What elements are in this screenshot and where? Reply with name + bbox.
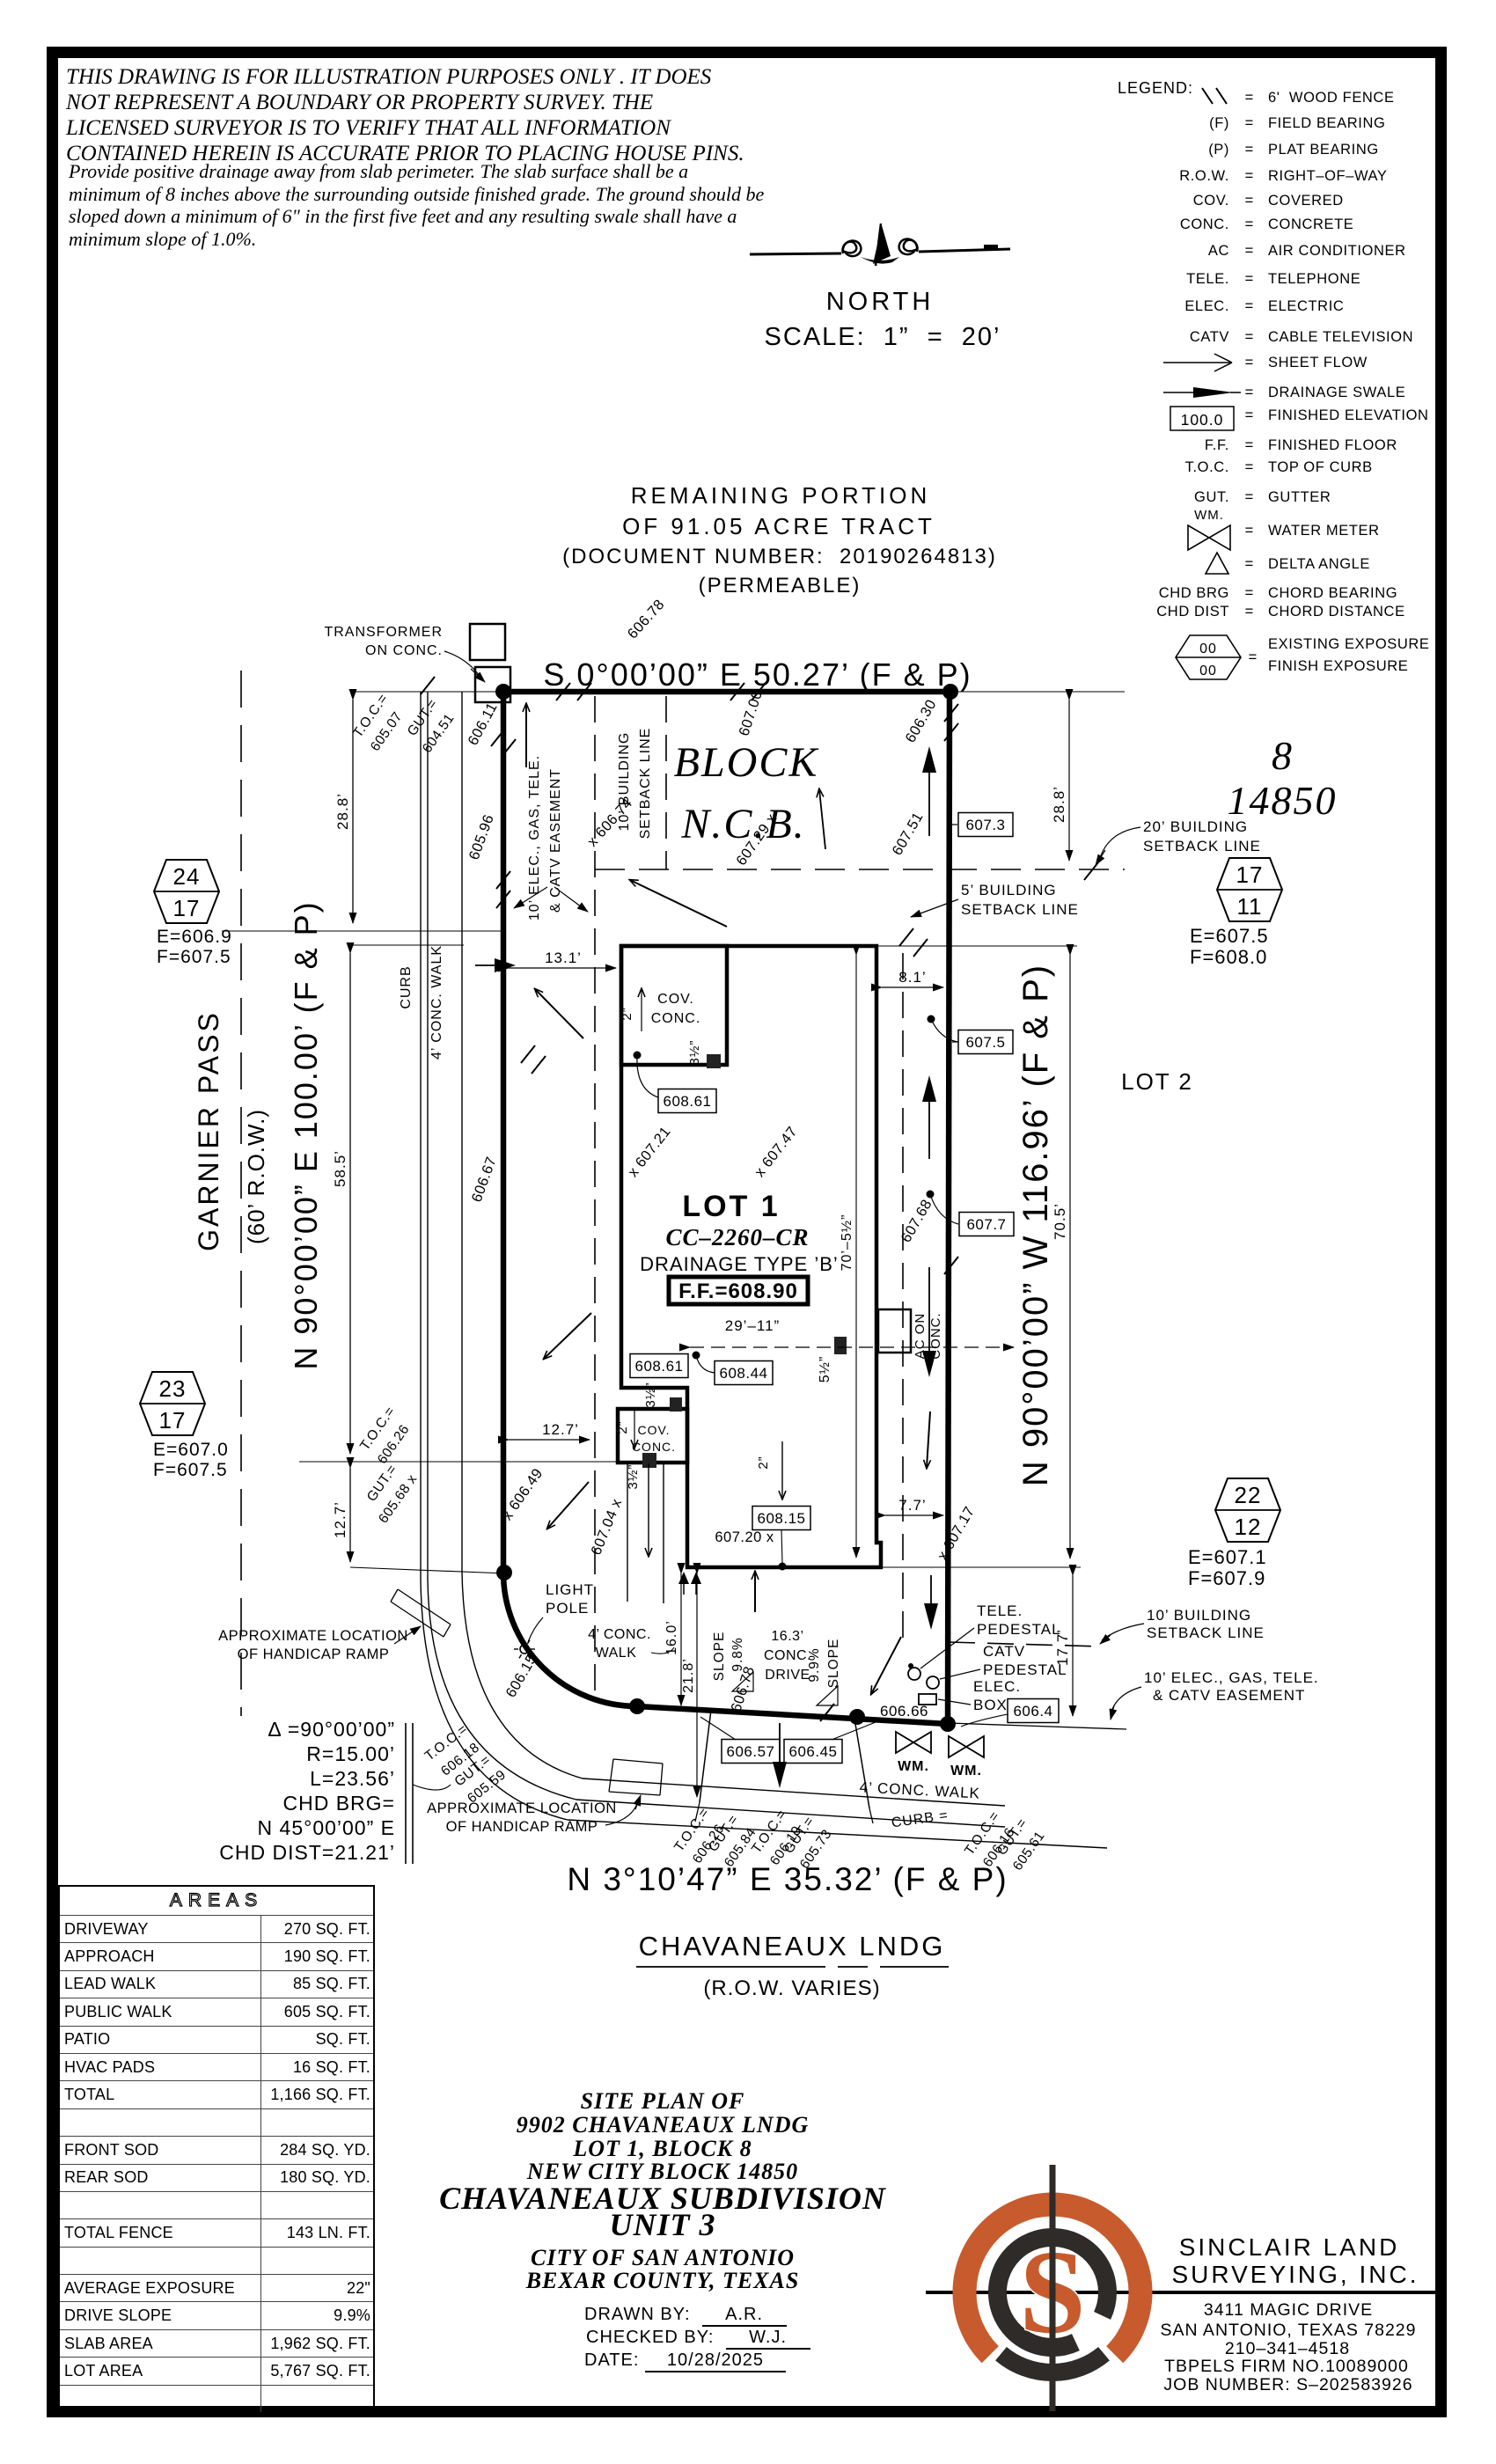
svg-text:CONC.: CONC.	[1180, 216, 1229, 232]
svg-text:CURB =: CURB =	[891, 1808, 950, 1831]
svg-text:N.C.B.: N.C.B.	[680, 801, 805, 847]
svg-text:=: =	[1249, 649, 1258, 665]
svg-text:SLOPE: SLOPE	[712, 1632, 727, 1682]
svg-text:F=607.5: F=607.5	[157, 947, 231, 967]
svg-text:CABLE TELEVISION: CABLE TELEVISION	[1268, 329, 1413, 345]
svg-text:(P): (P)	[1208, 142, 1229, 158]
svg-text:ELECTRIC: ELECTRIC	[1268, 298, 1344, 314]
svg-text:SCALE: 1” = 20’: SCALE: 1” = 20’	[765, 323, 1001, 351]
svg-text:606.30: 606.30	[903, 697, 940, 745]
svg-text:LIGHT: LIGHT	[546, 1581, 594, 1598]
svg-text:4’ CONC.: 4’ CONC.	[588, 1627, 651, 1642]
svg-text:10’ ELEC., GAS, TELE.: 10’ ELEC., GAS, TELE.	[1144, 1669, 1319, 1686]
svg-text:DELTA ANGLE: DELTA ANGLE	[1268, 556, 1370, 572]
svg-text:E=607.1: E=607.1	[1188, 1546, 1267, 1568]
svg-text:17: 17	[159, 1407, 187, 1434]
svg-text:x 607.47: x 607.47	[752, 1124, 801, 1180]
svg-text:(PERMEABLE): (PERMEABLE)	[699, 574, 862, 598]
svg-text:=: =	[1245, 193, 1255, 209]
svg-text:REMAINING PORTION: REMAINING PORTION	[631, 482, 931, 509]
svg-text:606.57: 606.57	[727, 1743, 775, 1760]
svg-text:5½”: 5½”	[818, 1356, 832, 1383]
svg-text:70’–5½”: 70’–5½”	[840, 1214, 854, 1272]
svg-text:CHD DIST=21.21’: CHD DIST=21.21’	[219, 1841, 395, 1864]
svg-text:607.20 x: 607.20 x	[715, 1529, 774, 1545]
svg-text:BLOCK: BLOCK	[674, 739, 820, 786]
svg-text:TOP OF CURB: TOP OF CURB	[1268, 459, 1373, 475]
svg-text:607.04 x: 607.04 x	[588, 1496, 625, 1557]
svg-text:=: =	[1245, 407, 1255, 423]
svg-text:LOT 1: LOT 1	[682, 1190, 780, 1223]
svg-text:(R.O.W. VARIES): (R.O.W. VARIES)	[703, 1976, 880, 2000]
svg-text:28.8’: 28.8’	[1051, 786, 1067, 823]
svg-text:7.7’: 7.7’	[898, 1497, 926, 1514]
svg-text:=: =	[1245, 271, 1255, 287]
svg-text:12.7’: 12.7’	[332, 1501, 348, 1538]
svg-text:CC–2260–CR: CC–2260–CR	[665, 1224, 809, 1250]
svg-text:606.67: 606.67	[469, 1155, 500, 1204]
svg-text:2”: 2”	[620, 1007, 634, 1020]
svg-text:PLAT BEARING: PLAT BEARING	[1268, 142, 1379, 158]
svg-text:607.5: 607.5	[965, 1034, 1005, 1051]
svg-text:CATV: CATV	[983, 1643, 1025, 1660]
svg-text:=: =	[1245, 604, 1255, 620]
svg-text:FINISH EXPOSURE: FINISH EXPOSURE	[1268, 658, 1408, 674]
svg-text:WALK: WALK	[596, 1646, 637, 1661]
svg-text:=: =	[1245, 355, 1255, 370]
svg-text:F=607.5: F=607.5	[153, 1460, 228, 1480]
svg-text:9.8%: 9.8%	[730, 1637, 745, 1671]
svg-text:607.68: 607.68	[898, 1197, 935, 1245]
svg-text:E=606.9: E=606.9	[157, 927, 232, 947]
svg-text:SETBACK LINE: SETBACK LINE	[638, 728, 653, 840]
svg-text:=: =	[1245, 298, 1255, 314]
svg-text:=: =	[1245, 115, 1255, 131]
svg-text:N 45°00’00” E: N 45°00’00” E	[258, 1816, 395, 1839]
svg-text:CHORD DISTANCE: CHORD DISTANCE	[1268, 604, 1405, 620]
svg-text:LOT 2: LOT 2	[1121, 1068, 1193, 1095]
svg-text:=: =	[1245, 385, 1255, 400]
svg-text:210–341–4518: 210–341–4518	[1225, 2339, 1350, 2358]
svg-text:OF 91.05 ACRE TRACT: OF 91.05 ACRE TRACT	[622, 513, 935, 539]
svg-text:JOB NUMBER: S–202583926: JOB NUMBER: S–202583926	[1163, 2375, 1412, 2394]
svg-text:14850: 14850	[1228, 778, 1338, 823]
svg-text:=: =	[1245, 556, 1255, 572]
svg-text:=: =	[1245, 523, 1255, 539]
svg-text:WM.: WM.	[950, 1764, 982, 1778]
svg-text:(F): (F)	[1209, 115, 1229, 131]
svg-text:CATV: CATV	[1190, 329, 1229, 345]
svg-text:607.3: 607.3	[965, 817, 1005, 833]
svg-text:=: =	[1245, 437, 1255, 453]
svg-text:F=607.9: F=607.9	[1188, 1567, 1265, 1589]
svg-text:COV.: COV.	[638, 1423, 671, 1437]
svg-text:TRANSFORMER: TRANSFORMER	[324, 625, 443, 640]
svg-text:607.00: 607.00	[736, 688, 766, 737]
svg-text:606.45: 606.45	[789, 1743, 838, 1760]
svg-text:AIR CONDITIONER: AIR CONDITIONER	[1268, 243, 1406, 259]
svg-text:N 90°00’00” E 100.00’ (F & P): N 90°00’00” E 100.00’ (F & P)	[288, 900, 324, 1369]
svg-text:607.7: 607.7	[966, 1216, 1006, 1233]
svg-text:L=23.56’: L=23.56’	[310, 1767, 395, 1790]
svg-text:11: 11	[1237, 893, 1263, 920]
svg-text:=: =	[1245, 168, 1255, 184]
svg-text:CONC.: CONC.	[764, 1648, 811, 1663]
svg-text:GUT.: GUT.	[1194, 489, 1229, 505]
svg-text:CHD BRG=: CHD BRG=	[283, 1792, 396, 1815]
svg-text:BOX: BOX	[973, 1697, 1008, 1713]
svg-text:PEDESTAL: PEDESTAL	[983, 1661, 1067, 1678]
svg-text:17: 17	[1236, 862, 1264, 888]
svg-text:RIGHT–OF–WAY: RIGHT–OF–WAY	[1268, 168, 1388, 184]
svg-text:CONC.: CONC.	[632, 1440, 676, 1454]
svg-text:3½”: 3½”	[643, 1382, 658, 1408]
svg-text:COVERED: COVERED	[1268, 193, 1344, 209]
svg-text:=: =	[1245, 142, 1255, 158]
svg-text:608.61: 608.61	[664, 1093, 712, 1110]
svg-text:9.9%: 9.9%	[807, 1647, 822, 1682]
svg-text:SETBACK LINE: SETBACK LINE	[961, 901, 1079, 918]
svg-text:N 90°00’00” W 116.96’ (F & P): N 90°00’00” W 116.96’ (F & P)	[1016, 964, 1055, 1486]
svg-text:=: =	[1245, 243, 1255, 259]
svg-text:GARNIER PASS: GARNIER PASS	[193, 1010, 224, 1251]
svg-text:COV.: COV.	[1193, 193, 1229, 209]
svg-text:607.51: 607.51	[890, 810, 927, 858]
svg-text:=: =	[1245, 90, 1255, 106]
svg-text:FIELD BEARING: FIELD BEARING	[1268, 115, 1385, 131]
svg-text:=: =	[1245, 459, 1255, 475]
svg-text:COV.: COV.	[657, 992, 694, 1007]
svg-text:10’ BUILDING: 10’ BUILDING	[1147, 1607, 1251, 1624]
svg-text:NORTH: NORTH	[826, 288, 935, 316]
svg-text:FINISHED ELEVATION: FINISHED ELEVATION	[1268, 407, 1429, 423]
svg-text:SLOPE: SLOPE	[826, 1639, 841, 1689]
svg-text:x 607.21: x 607.21	[625, 1124, 674, 1180]
svg-text:DRAINAGE SWALE: DRAINAGE SWALE	[1268, 385, 1405, 400]
svg-text:20’ BUILDING: 20’ BUILDING	[1143, 818, 1248, 835]
svg-text:F.F.=608.90: F.F.=608.90	[678, 1280, 798, 1303]
svg-text:606.78: 606.78	[625, 597, 668, 642]
svg-text:5’ BUILDING: 5’ BUILDING	[961, 882, 1057, 898]
svg-text:608.44: 608.44	[720, 1365, 768, 1382]
svg-text:OF HANDICAP RAMP: OF HANDICAP RAMP	[238, 1646, 390, 1662]
svg-text:Δ =90°00’00”: Δ =90°00’00”	[268, 1718, 395, 1741]
svg-text:CHORD BEARING: CHORD BEARING	[1268, 585, 1397, 601]
svg-text:SETBACK LINE: SETBACK LINE	[1143, 838, 1261, 854]
svg-text:17: 17	[173, 895, 201, 921]
svg-text:& CATV EASEMENT: & CATV EASEMENT	[548, 768, 563, 913]
svg-text:2”: 2”	[756, 1456, 771, 1469]
svg-text:PEDESTAL: PEDESTAL	[977, 1621, 1061, 1638]
svg-text:WATER METER: WATER METER	[1268, 523, 1380, 539]
svg-text:=: =	[1245, 489, 1255, 505]
svg-text:3411 MAGIC DRIVE: 3411 MAGIC DRIVE	[1204, 2300, 1373, 2320]
svg-text:F.F.: F.F.	[1205, 437, 1229, 453]
svg-text:TELEPHONE: TELEPHONE	[1268, 271, 1360, 287]
svg-text:APPROXIMATE LOCATION: APPROXIMATE LOCATION	[218, 1628, 408, 1644]
svg-text:00: 00	[1199, 664, 1217, 678]
svg-text:100.0: 100.0	[1181, 411, 1224, 429]
svg-text:605.96: 605.96	[466, 812, 497, 862]
svg-text:CONC.: CONC.	[651, 1011, 701, 1026]
svg-text:LEGEND:: LEGEND:	[1118, 79, 1193, 97]
svg-text:=: =	[1245, 329, 1255, 345]
svg-text:APPROXIMATE LOCATION: APPROXIMATE LOCATION	[427, 1800, 617, 1816]
svg-text:00: 00	[1199, 642, 1217, 656]
svg-text:POLE: POLE	[546, 1600, 589, 1617]
svg-text:TELE.: TELE.	[977, 1602, 1023, 1619]
svg-text:21.8’: 21.8’	[681, 1658, 696, 1693]
svg-text:DRIVE: DRIVE	[765, 1668, 810, 1683]
svg-text:FINISHED FLOOR: FINISHED FLOOR	[1268, 437, 1397, 453]
svg-text:AC: AC	[1208, 243, 1229, 259]
svg-text:CURB: CURB	[399, 965, 414, 1008]
svg-text:24: 24	[173, 863, 201, 890]
svg-text:CHD DIST: CHD DIST	[1156, 604, 1229, 620]
svg-text:F=608.0: F=608.0	[1190, 946, 1267, 968]
svg-text:8: 8	[1272, 733, 1293, 778]
svg-text:R=15.00’: R=15.00’	[306, 1742, 395, 1765]
svg-text:SINCLAIR LAND: SINCLAIR LAND	[1179, 2233, 1400, 2261]
svg-text:GUTTER: GUTTER	[1268, 489, 1331, 505]
svg-text:N 3°10’47” E 35.32’ (F & P): N 3°10’47” E 35.32’ (F & P)	[567, 1861, 1008, 1897]
svg-text:T.O.C.: T.O.C.	[1185, 459, 1229, 475]
svg-text:WM.: WM.	[898, 1759, 929, 1774]
svg-text:16.3’: 16.3’	[771, 1629, 803, 1644]
svg-text:12: 12	[1235, 1514, 1262, 1540]
svg-text:606.4: 606.4	[1013, 1703, 1052, 1720]
svg-text:ON CONC.: ON CONC.	[365, 643, 443, 658]
svg-text:70.5’: 70.5’	[1052, 1203, 1068, 1240]
svg-text:E=607.5: E=607.5	[1190, 925, 1269, 947]
svg-text:R.O.W.: R.O.W.	[1179, 168, 1229, 184]
svg-text:SHEET FLOW: SHEET FLOW	[1268, 355, 1368, 370]
svg-text:SETBACK LINE: SETBACK LINE	[1147, 1624, 1265, 1641]
svg-text:2”: 2”	[615, 1420, 630, 1434]
svg-text:608.15: 608.15	[758, 1510, 806, 1527]
svg-text:12.7’: 12.7’	[542, 1421, 579, 1438]
svg-text:x 607.17: x 607.17	[935, 1504, 978, 1563]
svg-text:TELE.: TELE.	[1186, 271, 1229, 287]
svg-text:CONCRETE: CONCRETE	[1268, 216, 1353, 232]
svg-text:DRAINAGE TYPE ’B’: DRAINAGE TYPE ’B’	[640, 1253, 839, 1275]
svg-text:=: =	[1245, 216, 1255, 232]
svg-text:23: 23	[159, 1375, 187, 1402]
svg-text:3½”: 3½”	[687, 1040, 702, 1066]
svg-text:8.1’: 8.1’	[898, 969, 926, 986]
svg-text:ELEC.: ELEC.	[973, 1678, 1021, 1695]
svg-text:(DOCUMENT NUMBER: 20190264813: (DOCUMENT NUMBER: 20190264813)	[562, 545, 997, 568]
svg-text:4’ CONC. WALK: 4’ CONC. WALK	[859, 1778, 980, 1801]
svg-text:22: 22	[1235, 1482, 1262, 1508]
svg-text:WM.: WM.	[1194, 508, 1224, 523]
svg-text:CHAVANEAUX LNDG: CHAVANEAUX LNDG	[639, 1931, 946, 1962]
svg-text:S 0°00’00” E 50.27’ (F & P): S 0°00’00” E 50.27’ (F & P)	[543, 656, 972, 693]
svg-text:OF HANDICAP RAMP: OF HANDICAP RAMP	[446, 1819, 598, 1835]
svg-text:608.61: 608.61	[635, 1358, 684, 1375]
svg-text:SAN ANTONIO, TEXAS 78229: SAN ANTONIO, TEXAS 78229	[1161, 2321, 1417, 2340]
svg-text:4’ CONC. WALK: 4’ CONC. WALK	[429, 945, 444, 1060]
svg-text:6' WOOD FENCE: 6' WOOD FENCE	[1268, 90, 1395, 106]
svg-text:CHD BRG: CHD BRG	[1159, 585, 1229, 601]
svg-text:29’–11”: 29’–11”	[725, 1317, 780, 1334]
svg-text:58.5’: 58.5’	[332, 1150, 348, 1187]
svg-text:EXISTING EXPOSURE: EXISTING EXPOSURE	[1268, 636, 1430, 652]
svg-text:& CATV EASEMENT: & CATV EASEMENT	[1153, 1687, 1305, 1704]
svg-text:SURVEYING, INC.: SURVEYING, INC.	[1172, 2261, 1419, 2288]
svg-text:E=607.0: E=607.0	[153, 1440, 229, 1460]
svg-text:=: =	[1245, 585, 1255, 601]
svg-text:13.1’: 13.1’	[545, 950, 582, 966]
svg-text:TBPELS FIRM NO.10089000: TBPELS FIRM NO.10089000	[1164, 2357, 1409, 2376]
svg-text:(60’ R.O.W.): (60’ R.O.W.)	[243, 1109, 269, 1244]
svg-text:606.15: 606.15	[503, 1652, 540, 1700]
svg-text:28.8’: 28.8’	[334, 793, 351, 830]
svg-text:ELEC.: ELEC.	[1184, 298, 1229, 314]
